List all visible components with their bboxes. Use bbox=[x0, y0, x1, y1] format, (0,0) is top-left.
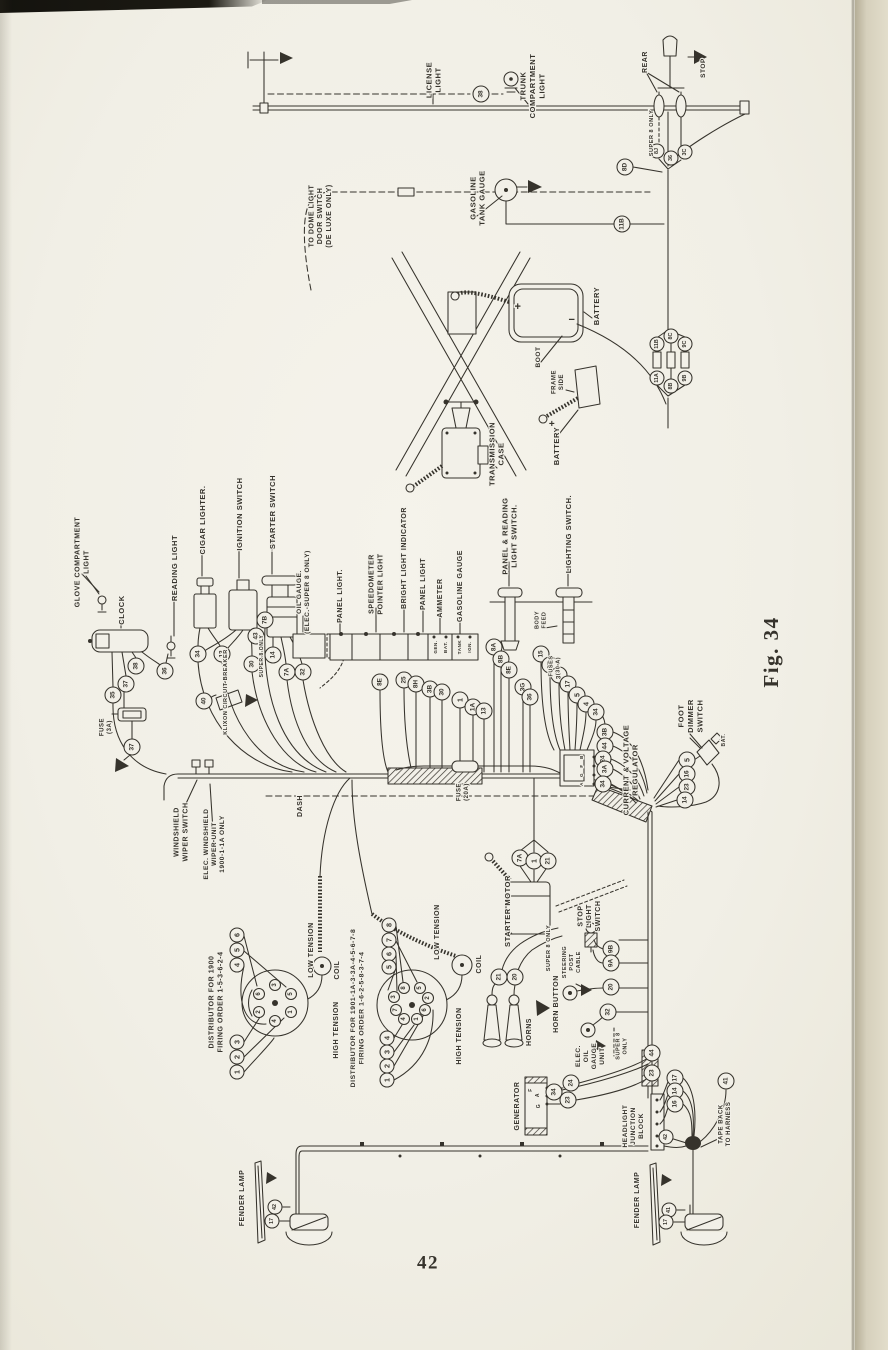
wire-number-7B: 7B bbox=[257, 612, 273, 628]
svg-text:3: 3 bbox=[233, 1040, 242, 1044]
wire-number-5: 5 bbox=[230, 943, 244, 957]
svg-text:4: 4 bbox=[383, 1036, 392, 1040]
battery-plus-lower-label: + bbox=[549, 419, 555, 430]
figure-caption: Fig. 34 bbox=[759, 616, 783, 687]
svg-text:3B: 3B bbox=[427, 685, 434, 694]
svg-text:13: 13 bbox=[481, 707, 488, 715]
wire-number-35: 35 bbox=[105, 687, 121, 703]
bright-light-indicator-label: BRIGHT LIGHT INDICATOR bbox=[401, 507, 408, 609]
coil-1-label: COIL bbox=[334, 960, 341, 979]
wiring-diagram-svg: 388J363C8D11B11B8C9C11A8B9B3837353634133… bbox=[0, 0, 888, 1350]
wire-number-17: 17 bbox=[659, 1215, 673, 1229]
wire-number-21: 21 bbox=[491, 969, 507, 985]
svg-text:34: 34 bbox=[551, 1088, 558, 1096]
svg-text:17: 17 bbox=[269, 1218, 275, 1224]
svg-text:8A: 8A bbox=[491, 643, 498, 652]
wire-number-36: 36 bbox=[522, 689, 538, 705]
svg-text:11B: 11B bbox=[619, 218, 626, 230]
wire-number-3: 3 bbox=[230, 1035, 244, 1049]
svg-text:14: 14 bbox=[682, 796, 689, 804]
wire-number-2: 2 bbox=[423, 993, 434, 1004]
cigar-lighter-label: CIGAR LIGHTER. bbox=[198, 486, 207, 555]
wire-number-32: 32 bbox=[295, 664, 311, 680]
wire-number-9C: 9C bbox=[678, 337, 692, 351]
ammeter-label: AMMETER bbox=[437, 578, 444, 617]
svg-text:1: 1 bbox=[530, 859, 539, 863]
rear-label: REAR bbox=[642, 51, 649, 73]
wire-number-36: 36 bbox=[664, 151, 678, 165]
generator-a-terminal-label: A bbox=[535, 1093, 541, 1097]
svg-text:9A: 9A bbox=[608, 959, 615, 968]
lighting-switch-label: LIGHTING SWITCH. bbox=[564, 495, 573, 573]
wire-number-1: 1 bbox=[286, 1007, 297, 1018]
wire-number-32: 32 bbox=[600, 1004, 616, 1020]
wire-number-13: 13 bbox=[476, 703, 492, 719]
wire-number-8: 8 bbox=[382, 918, 396, 932]
wire-number-3: 3 bbox=[389, 992, 400, 1003]
ignition-switch-label: IGNITION SWITCH bbox=[235, 477, 244, 550]
wire-number-23: 23 bbox=[560, 1092, 576, 1108]
wire-number-8B: 8B bbox=[664, 379, 678, 393]
wire-number-4: 4 bbox=[399, 1014, 410, 1025]
wire-number-2: 2 bbox=[254, 1007, 265, 1018]
svg-text:17: 17 bbox=[672, 1074, 679, 1082]
svg-text:15: 15 bbox=[538, 650, 545, 658]
svg-text:23: 23 bbox=[684, 783, 691, 791]
super8-rear-label: SUPER 8 ONLY bbox=[649, 110, 655, 156]
wire-number-11B: 11B bbox=[650, 337, 664, 351]
wire-number-14: 14 bbox=[265, 647, 281, 663]
svg-text:40: 40 bbox=[201, 697, 208, 705]
wire-number-20: 20 bbox=[507, 969, 523, 985]
low-tension-1-label: LOW TENSION bbox=[308, 922, 315, 977]
wire-number-41: 41 bbox=[718, 1073, 734, 1089]
wire-number-4: 4 bbox=[230, 958, 244, 972]
svg-text:7A: 7A bbox=[517, 854, 524, 863]
wire-number-24: 24 bbox=[563, 1075, 579, 1091]
wiring-artwork bbox=[82, 36, 749, 1245]
svg-text:41: 41 bbox=[723, 1077, 730, 1085]
wire-number-8D: 8D bbox=[617, 159, 633, 175]
wire-number-7A: 7A bbox=[279, 664, 295, 680]
svg-text:3B: 3B bbox=[602, 728, 609, 737]
wire-number-2: 2 bbox=[380, 1059, 394, 1073]
wire-number-7: 7 bbox=[391, 1005, 402, 1016]
svg-text:42: 42 bbox=[663, 1134, 669, 1140]
fuses-30a-label: FUSES(30 A) bbox=[549, 655, 562, 676]
svg-text:25: 25 bbox=[401, 676, 408, 684]
panel-light-2-label: PANEL LIGHT bbox=[420, 558, 427, 610]
wire-number-3: 3 bbox=[270, 980, 281, 991]
svg-text:1: 1 bbox=[383, 1078, 392, 1082]
coil-2-label: COIL bbox=[476, 954, 483, 973]
svg-text:34: 34 bbox=[600, 780, 607, 788]
svg-text:42: 42 bbox=[272, 1204, 278, 1210]
glove-compartment-light-label: GLOVE COMPARTMENTLIGHT bbox=[74, 517, 90, 608]
svg-text:5: 5 bbox=[233, 948, 242, 952]
low-tension-2-label: LOW TENSION bbox=[434, 904, 441, 959]
regulator-b-terminal-label: B bbox=[579, 755, 584, 759]
svg-text:6: 6 bbox=[233, 933, 242, 937]
elec-wiper-unit-label: ELEC. WINDSHIELDWIPER UNIT1900-1-1A ONLY bbox=[202, 809, 225, 880]
wire-number-3: 3 bbox=[380, 1045, 394, 1059]
speedometer-pointer-light-label: SPEEDOMETERPOINTER LIGHT bbox=[368, 553, 384, 614]
battery-plus-upper-label: + bbox=[515, 301, 522, 313]
svg-text:37: 37 bbox=[123, 680, 130, 688]
ammeter-bat-terminal-label: BAT. bbox=[443, 641, 448, 653]
svg-text:8C: 8C bbox=[668, 332, 674, 339]
transmission-case-label: TRANSMISSIONCASE bbox=[487, 422, 505, 486]
wire-number-4: 4 bbox=[380, 1031, 394, 1045]
svg-text:14: 14 bbox=[672, 1087, 679, 1095]
wire-number-21: 21 bbox=[540, 853, 556, 869]
svg-text:30: 30 bbox=[249, 660, 256, 668]
fuse-20a-label: FUSE(20A) bbox=[456, 783, 470, 801]
svg-text:34: 34 bbox=[195, 650, 202, 658]
starter-motor-label: STARTER MOTOR bbox=[503, 875, 512, 947]
body-feed-label: BODYFEED bbox=[535, 611, 548, 629]
wire-number-37: 37 bbox=[118, 676, 134, 692]
wire-number-7A: 7A bbox=[512, 850, 528, 866]
svg-text:16: 16 bbox=[684, 770, 691, 778]
wire-number-11A: 11A bbox=[650, 371, 664, 385]
boot-label: BOOT bbox=[535, 347, 542, 368]
svg-text:3C: 3C bbox=[682, 148, 688, 155]
high-tension-1-label: HIGH TENSION bbox=[333, 1001, 340, 1058]
wire-number-16: 16 bbox=[667, 1096, 683, 1112]
horn-button-label: HORN BUTTON bbox=[553, 975, 560, 1033]
gasoline-gauge-label: GASOLINE GAUGE bbox=[457, 550, 464, 622]
gasoline-tank-gauge-label: GASOLINETANK GAUGE bbox=[468, 170, 486, 225]
gas-ign-terminal-label: IGN. bbox=[467, 641, 472, 652]
steering-post-cable-label: STEERINGPOSTCABLE bbox=[562, 946, 582, 979]
klixon-circuit-breaker-label: KLIXON CIRCUIT BREAKER bbox=[223, 649, 229, 734]
svg-text:36: 36 bbox=[668, 155, 674, 161]
svg-text:38: 38 bbox=[133, 662, 140, 670]
wire-number-6: 6 bbox=[254, 989, 265, 1000]
svg-text:38: 38 bbox=[478, 90, 485, 98]
wire-number-3A: 3A bbox=[597, 761, 613, 777]
svg-text:7A: 7A bbox=[284, 668, 291, 677]
wire-number-38: 38 bbox=[473, 86, 489, 102]
wire-number-5: 5 bbox=[382, 960, 396, 974]
svg-text:9B: 9B bbox=[608, 945, 615, 954]
headlight-junction-block-label: HEADLIGHTJUNCTIONBLOCK bbox=[621, 1105, 644, 1148]
stop-light-switch-label: STOPLIGHTSWITCH bbox=[577, 901, 602, 932]
svg-text:1: 1 bbox=[233, 1070, 242, 1074]
page-number: 42 bbox=[417, 1253, 439, 1274]
svg-text:3A: 3A bbox=[602, 765, 609, 774]
svg-text:4: 4 bbox=[233, 963, 242, 967]
wire-number-2: 2 bbox=[230, 1050, 244, 1064]
svg-text:8B: 8B bbox=[498, 655, 505, 664]
super8-oil-label: SUPER 8ONLY bbox=[616, 1032, 629, 1059]
svg-text:8: 8 bbox=[385, 923, 394, 927]
svg-text:8E: 8E bbox=[506, 665, 513, 674]
wire-number-8: 8 bbox=[399, 983, 410, 994]
wire-number-34: 34 bbox=[546, 1084, 562, 1100]
distributor-1901-label: DISTRIBUTOR FOR 1901-1A-3-3A-4-5-6-7-8FI… bbox=[349, 929, 365, 1088]
svg-text:7B: 7B bbox=[262, 616, 269, 625]
svg-text:34: 34 bbox=[593, 708, 600, 716]
svg-text:36: 36 bbox=[527, 693, 534, 701]
fender-lamp-right-label: FENDER LAMP bbox=[634, 1172, 641, 1229]
svg-text:11B: 11B bbox=[654, 339, 660, 349]
trunk-compartment-light-label: TRUNKCOMPARTMENTLIGHT bbox=[518, 54, 546, 119]
wire-number-8C: 8C bbox=[664, 329, 678, 343]
wire-number-7: 7 bbox=[382, 933, 396, 947]
wire-number-6: 6 bbox=[382, 947, 396, 961]
generator-label: GENERATOR bbox=[514, 1081, 521, 1130]
windshield-wiper-switch-label: WINDSHIELDWIPER SWITCH bbox=[173, 802, 189, 861]
wire-number-44: 44 bbox=[644, 1045, 660, 1061]
dome-switch-label: TO DOME LIGHTDOOR SWITCH(DE LUXE ONLY) bbox=[308, 184, 333, 247]
wire-number-20: 20 bbox=[603, 979, 619, 995]
svg-text:21: 21 bbox=[545, 857, 552, 865]
svg-text:5: 5 bbox=[385, 965, 394, 969]
svg-text:35: 35 bbox=[110, 691, 117, 699]
bat-dimmer-label: BAT. bbox=[721, 733, 727, 746]
svg-text:30: 30 bbox=[439, 688, 446, 696]
wire-number-9B: 9B bbox=[678, 371, 692, 385]
foot-dimmer-switch-label: FOOTDIMMERSWITCH bbox=[676, 699, 704, 733]
svg-text:4: 4 bbox=[582, 702, 591, 706]
horns-label: HORNS bbox=[526, 1018, 533, 1046]
clock-label: CLOCK bbox=[117, 595, 126, 624]
svg-text:17: 17 bbox=[663, 1219, 669, 1225]
wire-number-42: 42 bbox=[268, 1200, 282, 1214]
svg-text:8H: 8H bbox=[413, 680, 420, 689]
svg-text:2: 2 bbox=[233, 1055, 242, 1059]
panel-light-1-label: PANEL LIGHT. bbox=[337, 569, 344, 623]
wire-number-40: 40 bbox=[196, 693, 212, 709]
svg-text:3: 3 bbox=[383, 1050, 392, 1054]
wire-number-3C: 3C bbox=[678, 145, 692, 159]
wire-number-17: 17 bbox=[265, 1214, 279, 1228]
wire-number-14: 14 bbox=[677, 792, 693, 808]
regulator-a-terminal-label: A bbox=[579, 782, 584, 786]
wire-number-34: 34 bbox=[190, 646, 206, 662]
svg-text:44: 44 bbox=[649, 1049, 656, 1057]
svg-text:16: 16 bbox=[672, 1100, 679, 1108]
svg-text:44: 44 bbox=[602, 742, 609, 750]
wire-number-38: 38 bbox=[128, 658, 144, 674]
svg-text:6: 6 bbox=[385, 952, 394, 956]
regulator-f-terminal-label: F bbox=[579, 764, 584, 767]
battery-lower-label: BATTERY bbox=[552, 427, 561, 465]
dash-label: DASH bbox=[297, 795, 304, 817]
wire-number-23: 23 bbox=[644, 1065, 660, 1081]
wire-number-34: 34 bbox=[595, 776, 611, 792]
wire-number-6: 6 bbox=[230, 928, 244, 942]
wire-number-37: 37 bbox=[124, 739, 140, 755]
wire-number-30: 30 bbox=[244, 656, 260, 672]
ammeter-gen-terminal-label: GEN. bbox=[433, 640, 438, 653]
svg-text:37: 37 bbox=[129, 743, 136, 751]
svg-text:7: 7 bbox=[385, 938, 394, 942]
svg-text:1A: 1A bbox=[470, 703, 477, 712]
super8-ignition-label: SUPER 8 ONLY bbox=[259, 634, 265, 677]
svg-text:1: 1 bbox=[456, 698, 465, 702]
wire-number-8E: 8E bbox=[372, 674, 388, 690]
svg-text:5: 5 bbox=[683, 758, 692, 762]
scanned-book-page: 388J363C8D11B11B8C9C11A8B9B3837353634133… bbox=[0, 0, 888, 1350]
svg-text:11A: 11A bbox=[654, 373, 660, 383]
tape-back-to-harness-label: TAPE BACKTO HARNESS bbox=[718, 1102, 732, 1147]
frame-side-label: FRAMESIDE bbox=[551, 370, 565, 394]
wire-number-11B: 11B bbox=[614, 216, 630, 232]
generator-g-terminal-label: G bbox=[536, 1104, 542, 1108]
wire-number-5: 5 bbox=[286, 989, 297, 1000]
wire-number-30: 30 bbox=[434, 684, 450, 700]
svg-text:9C: 9C bbox=[682, 340, 688, 347]
wire-number-4: 4 bbox=[270, 1016, 281, 1027]
svg-text:14: 14 bbox=[270, 651, 277, 659]
scan-edge-artifact-top-2 bbox=[262, 0, 412, 4]
wire-number-34: 34 bbox=[588, 704, 604, 720]
wire-number-9A: 9A bbox=[603, 955, 619, 971]
high-tension-2-label: HIGH TENSION bbox=[456, 1007, 463, 1064]
wire-number-5: 5 bbox=[415, 983, 426, 994]
fender-lamp-left-label: FENDER LAMP bbox=[239, 1170, 246, 1227]
svg-text:8D: 8D bbox=[622, 163, 629, 172]
svg-text:23: 23 bbox=[649, 1069, 656, 1077]
oil-gauge-label: OIL GAUGE.(ELEC.-SUPER 8 ONLY) bbox=[295, 550, 310, 634]
wire-number-1: 1 bbox=[230, 1065, 244, 1079]
wire-number-8E: 8E bbox=[501, 662, 517, 678]
regulator-g-terminal-label: G bbox=[579, 773, 584, 777]
wire-number-36: 36 bbox=[157, 663, 173, 679]
svg-text:20: 20 bbox=[512, 973, 519, 981]
fuse-3a-label: FUSE(3A) bbox=[99, 718, 113, 736]
panel-reading-light-switch-label: PANEL & READINGLIGHT SWITCH. bbox=[500, 497, 518, 574]
svg-text:8E: 8E bbox=[377, 677, 384, 686]
license-light-label: LICENSELIGHT bbox=[424, 62, 442, 98]
svg-text:24: 24 bbox=[568, 1079, 575, 1087]
stop-label: STOP bbox=[700, 58, 707, 78]
reading-light-label: READING LIGHT bbox=[170, 535, 179, 601]
distributor-1900-label: DISTRIBUTOR FOR 1900FIRING ORDER 1-5-3-6… bbox=[208, 951, 224, 1052]
battery-minus-upper-label: − bbox=[569, 314, 576, 326]
svg-text:21: 21 bbox=[496, 973, 503, 981]
gas-tank-terminal-label: TANK bbox=[457, 640, 462, 655]
svg-text:8B: 8B bbox=[668, 382, 674, 389]
page-edge bbox=[855, 0, 888, 1350]
wire-number-1: 1 bbox=[412, 1014, 423, 1025]
svg-text:41: 41 bbox=[666, 1207, 672, 1213]
scan-shadow-left bbox=[0, 0, 12, 1350]
svg-text:2: 2 bbox=[383, 1064, 392, 1068]
svg-text:9B: 9B bbox=[682, 374, 688, 381]
svg-text:20: 20 bbox=[608, 983, 615, 991]
wire-number-1: 1 bbox=[380, 1073, 394, 1087]
svg-text:32: 32 bbox=[300, 668, 307, 676]
generator-f-terminal-label: F bbox=[528, 1088, 534, 1092]
wire-number-42: 42 bbox=[659, 1130, 673, 1144]
svg-text:23: 23 bbox=[565, 1096, 572, 1104]
starter-switch-label: STARTER SWITCH bbox=[268, 475, 277, 549]
svg-text:32: 32 bbox=[605, 1008, 612, 1016]
svg-text:36: 36 bbox=[162, 667, 169, 675]
battery-frame-group bbox=[392, 252, 666, 492]
svg-text:5: 5 bbox=[573, 693, 582, 697]
svg-text:17: 17 bbox=[565, 680, 572, 688]
wire-number-6: 6 bbox=[420, 1005, 431, 1016]
battery-upper-label: BATTERY bbox=[592, 287, 601, 325]
super8-starter-label: SUPER 8 ONLY bbox=[546, 925, 552, 971]
